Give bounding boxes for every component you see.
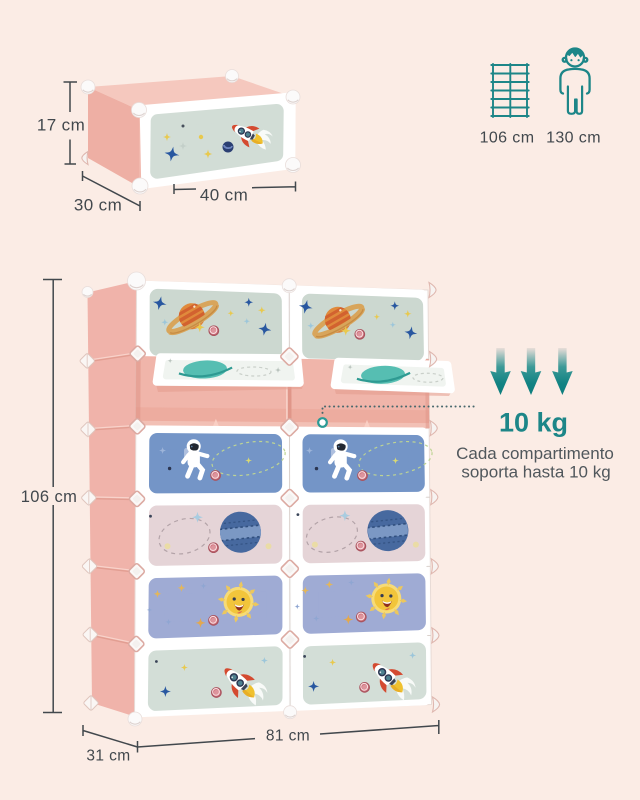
svg-text:130 cm: 130 cm: [546, 130, 601, 147]
svg-text:soporta hasta 10 kg: soporta hasta 10 kg: [461, 463, 610, 482]
svg-text:81 cm: 81 cm: [266, 728, 310, 745]
svg-text:31 cm: 31 cm: [86, 748, 130, 765]
svg-text:30 cm: 30 cm: [74, 196, 122, 215]
svg-text:106 cm: 106 cm: [21, 488, 78, 506]
svg-text:106 cm: 106 cm: [480, 130, 535, 147]
svg-text:10 kg: 10 kg: [499, 408, 568, 438]
svg-text:Cada compartimento: Cada compartimento: [456, 444, 614, 463]
svg-text:40 cm: 40 cm: [200, 186, 248, 205]
svg-text:17 cm: 17 cm: [37, 116, 85, 135]
